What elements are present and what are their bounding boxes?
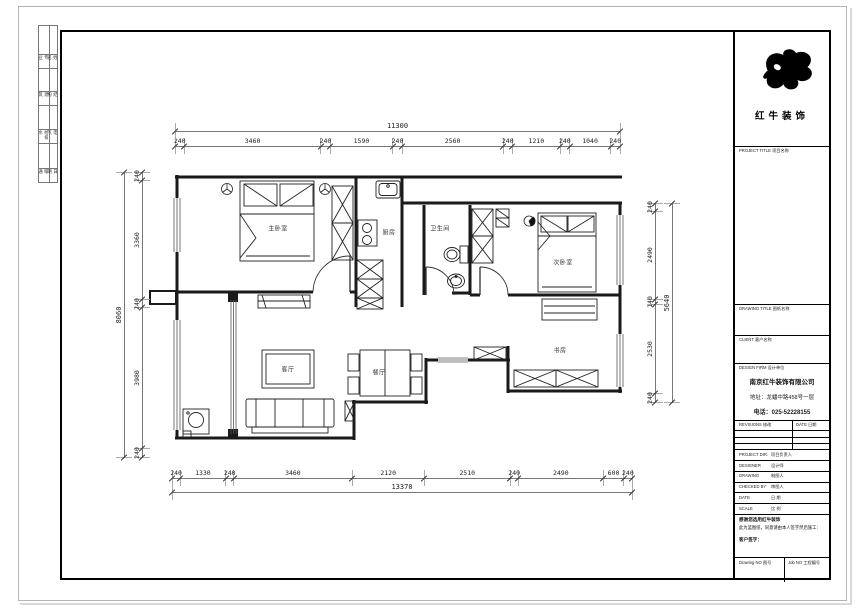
note-line1: 感谢您选用红牛装饰 — [739, 517, 780, 523]
study-cabinet-icon — [345, 347, 598, 421]
dimension-text: 1330 — [195, 469, 211, 477]
dimension-text: 2560 — [445, 137, 461, 145]
door-symbols — [313, 256, 508, 295]
staff-row-en: CHECKED BY — [739, 484, 766, 489]
tb-divider — [735, 482, 829, 483]
tb-divider — [735, 503, 829, 504]
staff-row-en: DATE — [739, 495, 750, 500]
dimension-text: 240 — [320, 137, 332, 145]
tb-divider — [735, 492, 829, 493]
tb-divider — [735, 471, 829, 472]
project-title-label: PROJECT TITLE 项目名称 — [739, 148, 789, 154]
dimension-text: 240 — [502, 137, 514, 145]
kitchen-cabinet-icon — [357, 260, 383, 309]
dimension-mark — [672, 203, 673, 402]
dimension-mark — [172, 492, 632, 493]
tb-divider — [735, 449, 829, 450]
staff-row-en: PROJECT DIR. — [739, 452, 768, 457]
room-label-bathroom: 卫生间 — [430, 224, 450, 233]
tb-divider — [792, 420, 793, 449]
design-firm-label: DESIGN FIRM 设计单位 — [739, 365, 784, 371]
wall-stubs — [150, 291, 237, 437]
tb-divider — [735, 557, 829, 558]
dimension-text: 240 — [646, 392, 654, 404]
dimension-text: 11300 — [387, 122, 408, 130]
staff-row-cn: 项目负责人 — [771, 452, 792, 458]
dimension-text: 2490 — [646, 248, 654, 264]
tb-divider — [735, 146, 829, 147]
dimension-mark — [172, 478, 632, 479]
cad-drawing-sheet: 专 业 姓 名 建 筑 结 构 给排水 电 气 暖 通 日 期 — [0, 0, 860, 608]
floor-plan — [0, 0, 860, 608]
staff-row-en: DRAWING — [739, 473, 759, 478]
tb-divider — [735, 363, 829, 364]
dimension-text: 240 — [508, 469, 520, 477]
wardrobe-icon — [332, 186, 353, 260]
dimension-text: 8060 — [115, 306, 123, 323]
tb-divider — [735, 514, 829, 515]
dimension-text: 240 — [133, 447, 141, 459]
staff-row-cn: 日 期 — [771, 495, 781, 501]
washer-icon — [183, 409, 209, 437]
dimension-mark — [175, 131, 620, 132]
closet-icon — [472, 209, 509, 263]
staff-row-cn: 设计师 — [771, 463, 784, 469]
company-name: 南京红牛装饰有限公司 — [735, 376, 829, 386]
basin-icon — [448, 274, 465, 288]
dimension-text: 3460 — [285, 469, 301, 477]
dimension-text: 13370 — [391, 483, 412, 491]
dimension-mark — [124, 172, 125, 457]
bed2-icon — [538, 213, 596, 292]
dimension-text: 240 — [559, 137, 571, 145]
tb-divider — [735, 437, 829, 438]
staff-row-cn: 审图人 — [771, 484, 784, 490]
client-label: CLIENT 客户名称 — [739, 337, 772, 343]
room-label-kitchen: 厨房 — [382, 228, 395, 237]
staff-row-en: SCALE — [739, 506, 753, 511]
company-phone: 电话：025-52228155 — [735, 407, 829, 416]
dimension-text: 2490 — [553, 469, 569, 477]
dimension-text: 1040 — [582, 137, 598, 145]
dimension-text: 3460 — [245, 137, 261, 145]
company-logo — [752, 46, 816, 104]
dimension-text: 3360 — [133, 232, 141, 248]
dimension-text: 1210 — [528, 137, 544, 145]
dimension-text: 5640 — [663, 294, 671, 311]
tv-cabinet-icon — [258, 295, 310, 308]
staff-row-cn: 比 例 — [771, 506, 781, 512]
dimension-text: 240 — [224, 469, 236, 477]
tb-divider — [735, 304, 829, 305]
window-lines — [174, 198, 623, 434]
dimension-text: 240 — [170, 469, 182, 477]
dimension-text: 240 — [133, 298, 141, 310]
brand-name: 红牛装饰 — [735, 108, 829, 122]
company-address: 地址：龙蟠中路458号一层 — [735, 393, 829, 401]
drawing-title-label: DRAWING TITLE 图纸名称 — [739, 306, 790, 312]
tb-divider — [735, 335, 829, 336]
dimension-text: 1590 — [354, 137, 370, 145]
dimension-text: 2510 — [459, 469, 475, 477]
dimension-text: 2120 — [380, 469, 396, 477]
revisions-label: REVISIONS 修改 — [739, 422, 771, 428]
ceiling-fan-icon — [524, 216, 535, 226]
dimension-text: 2530 — [646, 341, 654, 357]
tb-divider — [735, 443, 829, 444]
room-label-study: 书房 — [553, 346, 566, 355]
sofa-icon — [246, 399, 334, 433]
tb-divider — [735, 460, 829, 461]
wall-lines — [175, 175, 622, 440]
dimension-text: 240 — [392, 137, 404, 145]
dimension-text: 3980 — [133, 370, 141, 386]
dimension-text: 140 — [646, 296, 654, 308]
dimension-mark — [175, 146, 620, 147]
dimension-mark — [142, 172, 143, 457]
staff-row-cn: 制图人 — [771, 473, 784, 479]
drawing-no-label: Drawing NO 图号 — [739, 560, 771, 566]
tb-divider — [784, 557, 785, 582]
room-label-second-bedroom: 次卧室 — [553, 258, 573, 267]
job-no-label: Job NO 工程编号 — [788, 560, 820, 566]
date-col-label: DATE 日期 — [796, 422, 816, 428]
title-block: 红牛装饰 PROJECT TITLE 项目名称 DRAWING TITLE 图纸… — [733, 30, 831, 580]
note-line3: 客户签字： — [739, 537, 762, 543]
staff-row-en: DESIGNER — [739, 463, 761, 468]
room-label-living-room: 客厅 — [281, 365, 294, 374]
dimension-text: 240 — [646, 201, 654, 213]
toilet-icon — [444, 246, 468, 263]
bed-icon — [240, 181, 314, 261]
room-label-dining-room: 餐厅 — [372, 368, 385, 377]
room-label-master-bedroom: 主卧室 — [268, 224, 288, 233]
dimension-text: 240 — [133, 170, 141, 182]
dimension-text: 240 — [622, 469, 634, 477]
dimension-text: 600 — [608, 469, 620, 477]
stove-icon — [358, 220, 377, 246]
tb-divider — [735, 430, 829, 431]
kitchen-sink-icon — [376, 181, 400, 198]
dimension-text: 240 — [174, 137, 186, 145]
note-line2: 此为蓝图纸，同意请由本人签字然后施工： — [739, 525, 821, 531]
bay-desk-icon — [542, 299, 597, 320]
tb-divider — [735, 420, 829, 421]
